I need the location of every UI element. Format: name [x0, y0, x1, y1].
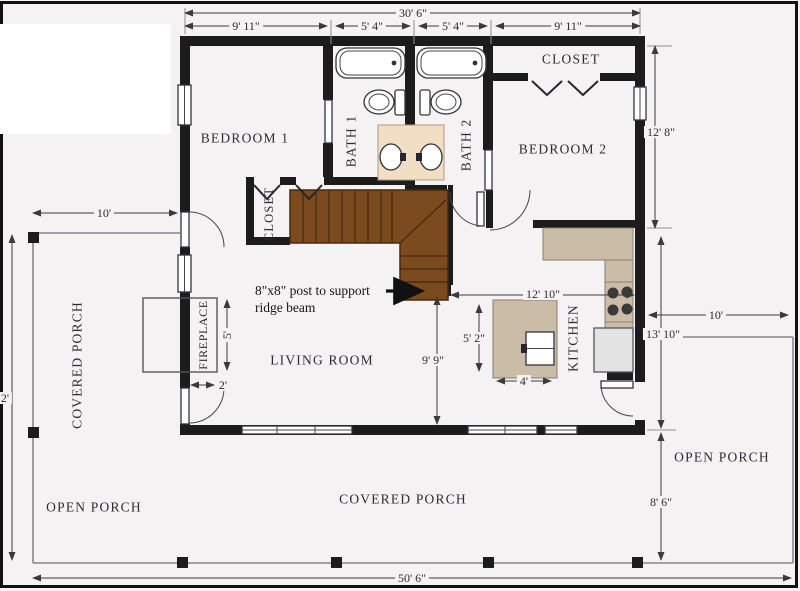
room-label-closet-stairs: CLOSET [263, 187, 276, 241]
dim-bedroom2-depth: 12' 8" [644, 126, 678, 138]
floor-plan: 30' 6" 9' 11" 5' 4" 5' 4" 9' 11" 12' 8" … [0, 0, 800, 591]
refrigerator [594, 328, 633, 372]
window-bottom-c [545, 426, 577, 434]
faucet-1 [400, 153, 406, 161]
dim-island-height: 5' 2" [460, 332, 488, 344]
dim-fireplace-depth: 2' [216, 379, 230, 391]
stove [605, 282, 633, 322]
room-label-open-porch-bl: OPEN PORCH [46, 500, 142, 514]
door-bath2 [450, 192, 484, 226]
island-faucet [521, 344, 527, 353]
bifold-closet-top-left [532, 81, 562, 95]
room-label-fireplace: FIREPLACE [197, 300, 209, 369]
dim-fireplace-height: 5' [221, 328, 233, 342]
room-label-covered-porch-left: COVERED PORCH [70, 301, 84, 429]
dim-island-width: 4' [517, 375, 531, 387]
dim-seg-right: 9' 11" [551, 20, 585, 32]
bathtub-2 [417, 48, 486, 78]
kitchen-island [493, 300, 557, 378]
window-bottom-b [468, 426, 537, 434]
room-label-bedroom1: BEDROOM 1 [201, 131, 289, 145]
vanity [378, 125, 444, 180]
bifold-closet-top-right [568, 81, 598, 95]
window-left-upper [178, 85, 191, 125]
dim-overall-width: 30' 6" [396, 7, 430, 19]
dim-seg-bath2: 5' 4" [439, 20, 467, 32]
window-bottom-a [242, 426, 352, 434]
room-label-bath1: BATH 1 [344, 115, 358, 168]
room-label-bath2: BATH 2 [459, 119, 473, 172]
room-label-living-room: LIVING ROOM [270, 353, 374, 367]
dim-overall-length: 50' 6" [395, 572, 429, 584]
dim-seg-bath1: 5' 4" [358, 20, 386, 32]
room-label-kitchen: KITCHEN [566, 304, 580, 372]
faucet-2 [416, 153, 422, 161]
post-note-line2: ridge beam [255, 301, 315, 315]
toilet-1 [364, 90, 405, 115]
door-right-kitchen [601, 381, 633, 416]
post-note-line1: 8"x8" post to support [255, 284, 370, 298]
window-right-bedroom2 [634, 87, 646, 120]
dim-left-edge-partial: 2' [0, 392, 12, 404]
door-entry-upper [181, 212, 224, 247]
door-bath1-pocket [325, 100, 332, 143]
dim-living-height: 9' 9" [419, 354, 447, 366]
dim-kitchen-zone-height: 13' 10" [643, 328, 683, 340]
window-left-lower [178, 255, 191, 292]
room-label-open-porch-right: OPEN PORCH [674, 450, 770, 464]
dim-porch-bottom-depth: 8' 6" [647, 496, 675, 508]
dim-kitchen-width: 12' 10" [523, 288, 563, 300]
room-label-covered-porch-bottom: COVERED PORCH [339, 492, 467, 506]
white-patch [0, 24, 171, 134]
toilet-2 [420, 90, 461, 115]
room-label-bedroom2: BEDROOM 2 [519, 142, 607, 156]
dim-porch-left-depth: 10' [94, 207, 114, 219]
dim-seg-left: 9' 11" [229, 20, 263, 32]
island-sink [521, 332, 554, 365]
room-label-closet-top: CLOSET [542, 52, 600, 66]
dim-porch-right-width: 10' [706, 309, 726, 321]
bathtub-1 [336, 48, 405, 78]
door-entry-lower [181, 388, 224, 424]
